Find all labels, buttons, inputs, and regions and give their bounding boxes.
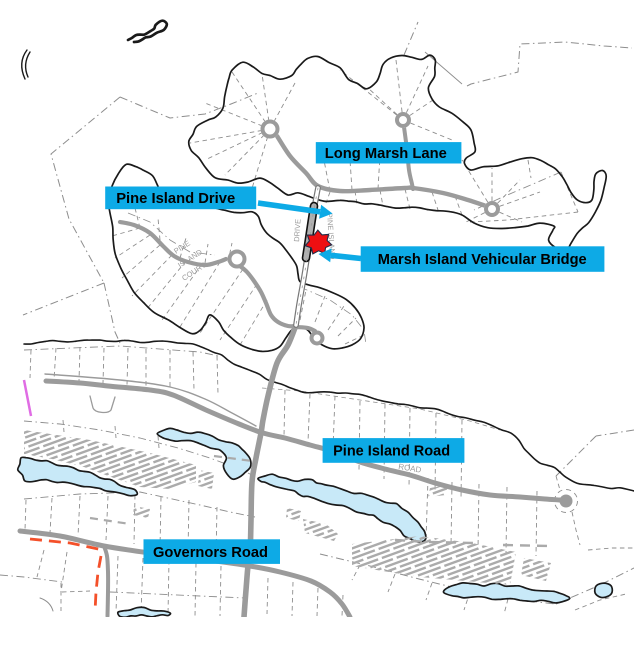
svg-text:Marsh Island Vehicular Bridge: Marsh Island Vehicular Bridge [378,251,587,268]
svg-text:Pine Island Drive: Pine Island Drive [116,190,235,207]
svg-text:Governors Road: Governors Road [153,544,268,561]
svg-text:Long Marsh Lane: Long Marsh Lane [325,145,447,162]
svg-text:Pine Island Road: Pine Island Road [333,443,450,460]
svg-text:DRIVE: DRIVE [292,219,303,242]
